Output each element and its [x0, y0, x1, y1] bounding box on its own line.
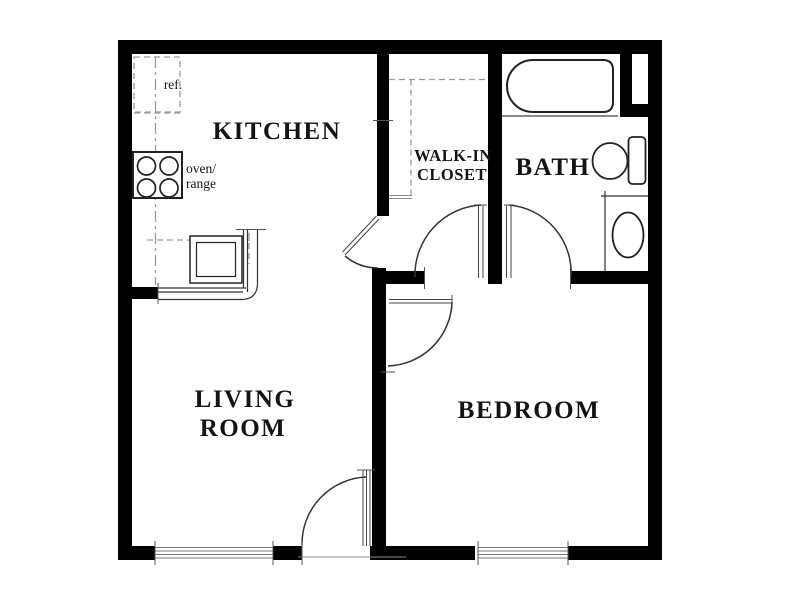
living-bedroom-wall — [372, 268, 386, 546]
floor-plan-drawing: KITCHEN WALK-IN CLOSET BATH LIVING ROOM … — [0, 0, 800, 600]
bottom-wall-segment — [118, 546, 155, 560]
bedroom-entry-wall-stub — [386, 271, 424, 284]
bath-door-panel — [507, 205, 512, 278]
burner-icon — [138, 179, 156, 197]
toilet — [593, 137, 646, 184]
bath-door — [504, 205, 571, 278]
entry-door-arc — [302, 477, 366, 545]
bedroom-door — [388, 295, 452, 366]
closet-bath-wall — [488, 54, 502, 284]
bottom-wall-segment — [568, 546, 662, 560]
kitchen-door — [343, 216, 380, 268]
burner-icon — [138, 157, 156, 175]
bottom-wall-segment — [370, 546, 475, 560]
kitchen-label: KITCHEN — [213, 118, 342, 145]
living-room-label-line1: LIVING — [195, 386, 296, 413]
outer-wall-top — [118, 40, 662, 54]
oven-range-label-line2: range — [186, 176, 216, 191]
kitchen-door-panel — [343, 216, 380, 255]
burner-icon — [160, 157, 178, 175]
bedroom-label: BEDROOM — [458, 397, 600, 424]
bottom-wall-segment — [273, 546, 302, 560]
closet-door-panel — [479, 205, 484, 278]
bedroom-door-arc — [388, 302, 452, 366]
refrigerator-label: ref. — [164, 77, 182, 92]
linen-niche-wall-horizontal — [620, 104, 652, 117]
burner-icon — [160, 179, 178, 197]
living-room-window — [155, 541, 273, 565]
bath-south-wall — [571, 271, 648, 284]
bedroom-door-panel — [389, 300, 452, 304]
bath-label: BATH — [516, 154, 591, 181]
toilet-bowl — [593, 143, 628, 179]
kitchen-closet-wall — [377, 54, 389, 216]
closet-door — [415, 205, 487, 278]
vanity-sink — [613, 213, 644, 258]
walk-in-closet-label-line1: WALK-IN — [414, 146, 492, 165]
floor-plan: KITCHEN WALK-IN CLOSET BATH LIVING ROOM … — [0, 0, 800, 600]
walk-in-closet-label-line2: CLOSET — [417, 165, 487, 184]
vanity — [601, 191, 648, 271]
outer-wall-left — [118, 40, 132, 560]
kitchen-counter-wall-stub — [132, 287, 158, 299]
kitchen-sink — [190, 236, 242, 283]
bath-door-arc — [509, 205, 571, 277]
entry-door-panel — [363, 470, 370, 546]
outer-wall-right — [648, 40, 662, 560]
bathtub — [502, 60, 618, 116]
living-room-label-line2: ROOM — [200, 415, 287, 442]
toilet-tank — [629, 137, 646, 184]
closet-door-arc — [415, 205, 481, 277]
oven-range — [133, 152, 182, 198]
oven-range-label-line1: oven/ — [186, 161, 216, 176]
bedroom-window — [478, 541, 568, 565]
kitchen-door-arc — [345, 256, 378, 268]
